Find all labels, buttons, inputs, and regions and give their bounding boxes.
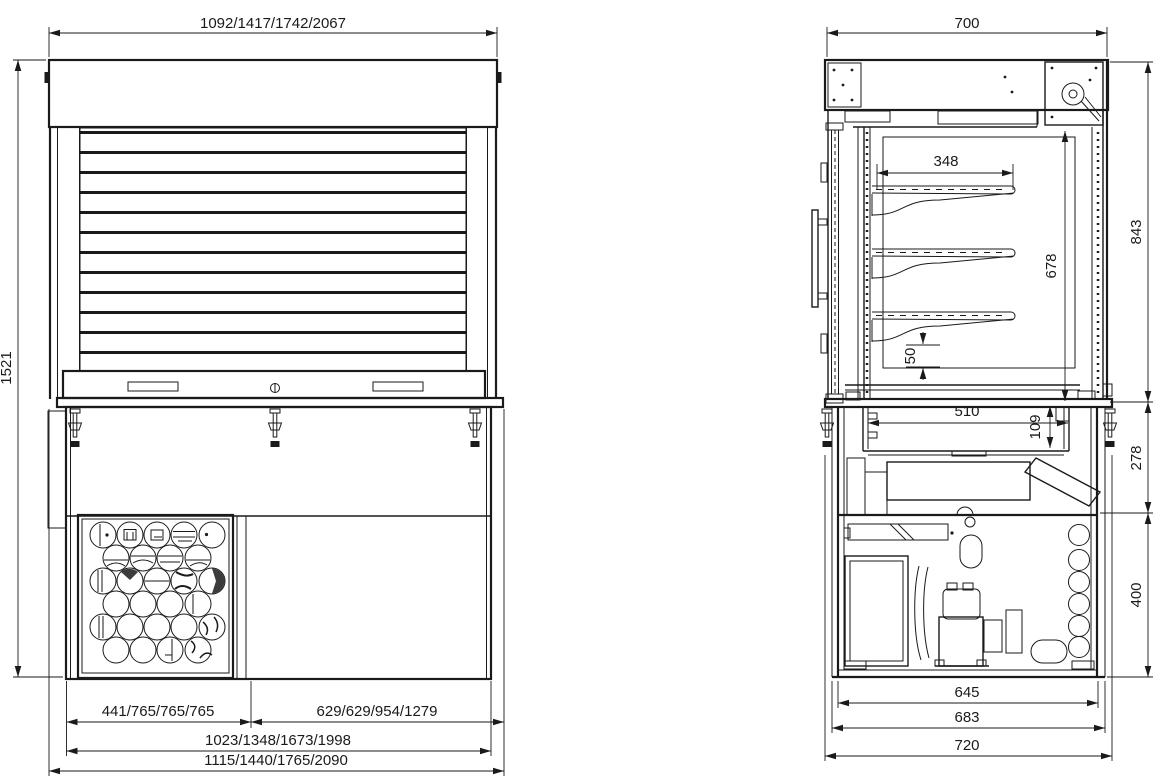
front-view: 1092/1417/1742/2067 1521 441/765/765/765… bbox=[0, 15, 504, 776]
dim-front-grille-width: 441/765/765/765 bbox=[102, 703, 215, 720]
shelves bbox=[872, 186, 1015, 342]
interior-back-panel bbox=[883, 137, 1075, 368]
base-side-panel bbox=[48, 411, 66, 528]
shutter-handle-right bbox=[373, 382, 423, 391]
dim-well-section-height: 278 bbox=[1128, 445, 1145, 470]
cable-grommets bbox=[1069, 525, 1090, 658]
roller-shutter bbox=[80, 128, 466, 371]
well-fan-icon bbox=[1025, 458, 1100, 506]
technical-drawing: 1092/1417/1742/2067 1521 441/765/765/765… bbox=[0, 0, 1160, 778]
fan-blade-icon bbox=[915, 566, 921, 660]
dim-front-overall-height: 1521 bbox=[0, 351, 15, 384]
dim-front-overall-width-top: 1092/1417/1742/2067 bbox=[200, 15, 346, 32]
interior-floor bbox=[845, 385, 1095, 400]
machine-compartment-contents bbox=[844, 517, 1090, 666]
light-housing bbox=[938, 111, 1038, 124]
ventilation-grille bbox=[78, 515, 233, 678]
dim-shelf-depth: 348 bbox=[933, 153, 958, 170]
front-countertop bbox=[57, 398, 503, 407]
dim-shelf-pitch: 50 bbox=[902, 348, 919, 365]
shutter-lock-icon bbox=[271, 383, 280, 393]
dim-front-body-width: 1023/1348/1673/1998 bbox=[205, 732, 351, 749]
compressor bbox=[935, 583, 989, 666]
dim-front-right-section-width: 629/629/954/1279 bbox=[317, 703, 438, 720]
dim-well-width: 510 bbox=[954, 403, 979, 420]
canopy-clip-left bbox=[45, 72, 50, 83]
door-hinge-top bbox=[821, 163, 827, 182]
shutter-handle-left bbox=[128, 382, 178, 391]
dim-well-depth: 109 bbox=[1027, 414, 1044, 439]
rear-door bbox=[812, 110, 843, 403]
dim-display-height: 843 bbox=[1128, 219, 1145, 244]
canopy-clip-right bbox=[497, 72, 502, 83]
dim-base-body-depth: 683 bbox=[954, 709, 979, 726]
dim-side-overall-depth-top: 700 bbox=[954, 15, 979, 32]
dim-overall-depth-bottom: 720 bbox=[954, 737, 979, 754]
technical-drawing-page: 1092/1417/1742/2067 1521 441/765/765/765… bbox=[0, 0, 1160, 778]
dim-base-section-height: 400 bbox=[1128, 582, 1145, 607]
dim-interior-height: 678 bbox=[1043, 253, 1060, 278]
evaporator-cover-tray bbox=[887, 462, 1030, 500]
dim-base-inner-depth: 645 bbox=[954, 684, 979, 701]
dim-front-overall-width-bottom: 1115/1440/1765/2090 bbox=[204, 752, 348, 769]
adjustable-feet-front bbox=[69, 409, 482, 447]
door-hinge-bottom bbox=[821, 334, 827, 353]
shelf-rack-column bbox=[858, 127, 870, 399]
side-canopy bbox=[825, 60, 1108, 127]
shutter-bottom-bar bbox=[63, 371, 485, 398]
front-canopy bbox=[45, 60, 502, 127]
shutter-roller-mechanism bbox=[1045, 62, 1103, 125]
front-base-cabinet bbox=[48, 407, 491, 679]
door-handle bbox=[812, 210, 827, 307]
receiver-tank bbox=[1031, 640, 1067, 663]
side-view: 700 348 678 843 278 400 510 109 50 645 bbox=[812, 15, 1153, 761]
condenser bbox=[845, 556, 908, 666]
